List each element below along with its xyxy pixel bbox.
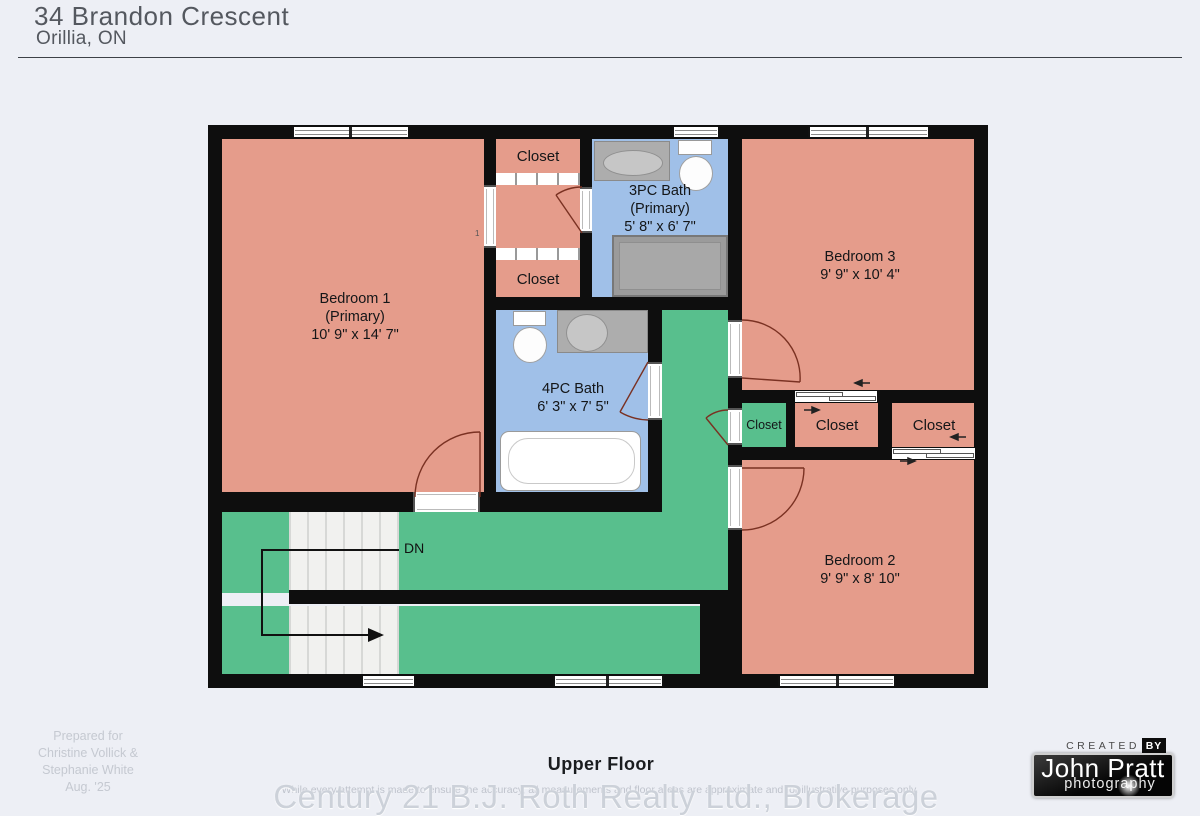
floor-title: Upper Floor	[548, 754, 654, 775]
room-dims: 9' 9" x 8' 10"	[820, 570, 900, 588]
stairs-down-label: DN	[404, 540, 424, 556]
label-closet-bottom: Closet	[517, 271, 560, 288]
door-arc-bedroom1	[415, 432, 480, 497]
door-leaf-bath4pc	[620, 362, 648, 412]
created-label: CREATED	[1066, 740, 1140, 752]
door-leaf-bedroom3	[742, 378, 800, 382]
photographer-logo: John Pratt photography	[1032, 753, 1174, 798]
room-dims: 9' 9" x 10' 4"	[820, 266, 900, 284]
sparkle-icon	[1116, 773, 1142, 798]
prepared-date: Aug. '25	[20, 779, 156, 796]
label-closet-bedroom3: Closet	[816, 417, 859, 434]
room-dims: 10' 9" x 14' 7"	[311, 326, 399, 344]
room-name: Bedroom 3	[820, 248, 900, 266]
door-arc-closet-bath	[556, 187, 582, 195]
floorplan: Bedroom 1 (Primary) 10' 9" x 14' 7" 3PC …	[208, 125, 988, 688]
door-leaf-closet-bath	[556, 195, 582, 233]
prepared-for-line: Prepared for	[20, 728, 156, 745]
brokerage-name: Century 21 B.J. Roth Realty Ltd., Broker…	[273, 778, 938, 816]
label-bedroom3: Bedroom 3 9' 9" x 10' 4"	[820, 248, 900, 284]
label-closet-top: Closet	[517, 148, 560, 165]
property-city: Orillia, ON	[36, 28, 127, 50]
prepared-for-block: Prepared for Christine Vollick & Stephan…	[20, 728, 156, 796]
stair-direction-path	[262, 550, 399, 635]
header-divider	[18, 57, 1182, 58]
door-leaf-closet-hall	[706, 418, 728, 445]
client-name: Christine Vollick &	[20, 745, 156, 762]
label-closet-hall: Closet	[746, 418, 781, 432]
door-arc-bath4pc	[620, 412, 648, 420]
by-badge: BY	[1142, 738, 1166, 754]
label-bedroom1: Bedroom 1 (Primary) 10' 9" x 14' 7"	[311, 290, 399, 344]
room-name: 4PC Bath	[537, 380, 608, 398]
plan-annotation: 1	[475, 229, 479, 238]
label-bedroom2: Bedroom 2 9' 9" x 8' 10"	[820, 552, 900, 588]
door-arc-bedroom3	[742, 320, 800, 382]
room-qualifier: (Primary)	[624, 200, 695, 218]
door-arc-closet-hall	[706, 410, 728, 418]
room-qualifier: (Primary)	[311, 308, 399, 326]
label-closet-bedroom2: Closet	[913, 417, 956, 434]
client-name: Stephanie White	[20, 762, 156, 779]
room-name: Bedroom 1	[311, 290, 399, 308]
door-arc-bedroom2	[742, 468, 804, 530]
room-dims: 5' 8" x 6' 7"	[624, 218, 695, 236]
floorplan-page: { "header": { "address": "34 Brandon Cre…	[0, 0, 1200, 800]
room-dims: 6' 3" x 7' 5"	[537, 398, 608, 416]
photographer-credit: CREATED BY John Pratt photography	[1028, 736, 1174, 796]
label-bath3pc: 3PC Bath (Primary) 5' 8" x 6' 7"	[624, 182, 695, 236]
room-name: Bedroom 2	[820, 552, 900, 570]
room-name: 3PC Bath	[624, 182, 695, 200]
door-swing-arcs	[415, 187, 804, 530]
stair-direction-arrowhead	[368, 628, 384, 642]
photographer-specialty: photography	[1048, 776, 1172, 792]
label-bath4pc: 4PC Bath 6' 3" x 7' 5"	[537, 380, 608, 416]
